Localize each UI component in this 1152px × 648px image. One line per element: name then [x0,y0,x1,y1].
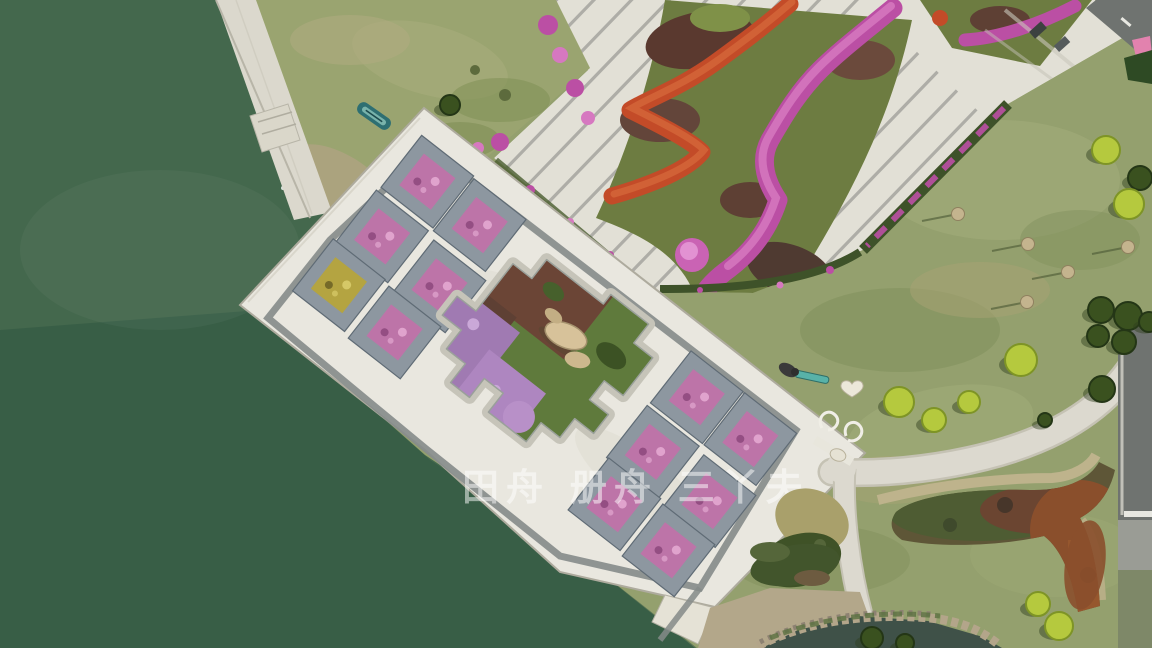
person [791,368,799,376]
photo-watermark: 田舟 册舟 三丫夫 [462,466,810,509]
aerial-photo-lakeside-flower-plaza: 田舟 册舟 三丫夫 [0,0,1152,648]
scene-canvas: 田舟 册舟 三丫夫 [0,0,1152,648]
roadway-right [1118,316,1152,648]
road-stop-line [1124,511,1152,517]
